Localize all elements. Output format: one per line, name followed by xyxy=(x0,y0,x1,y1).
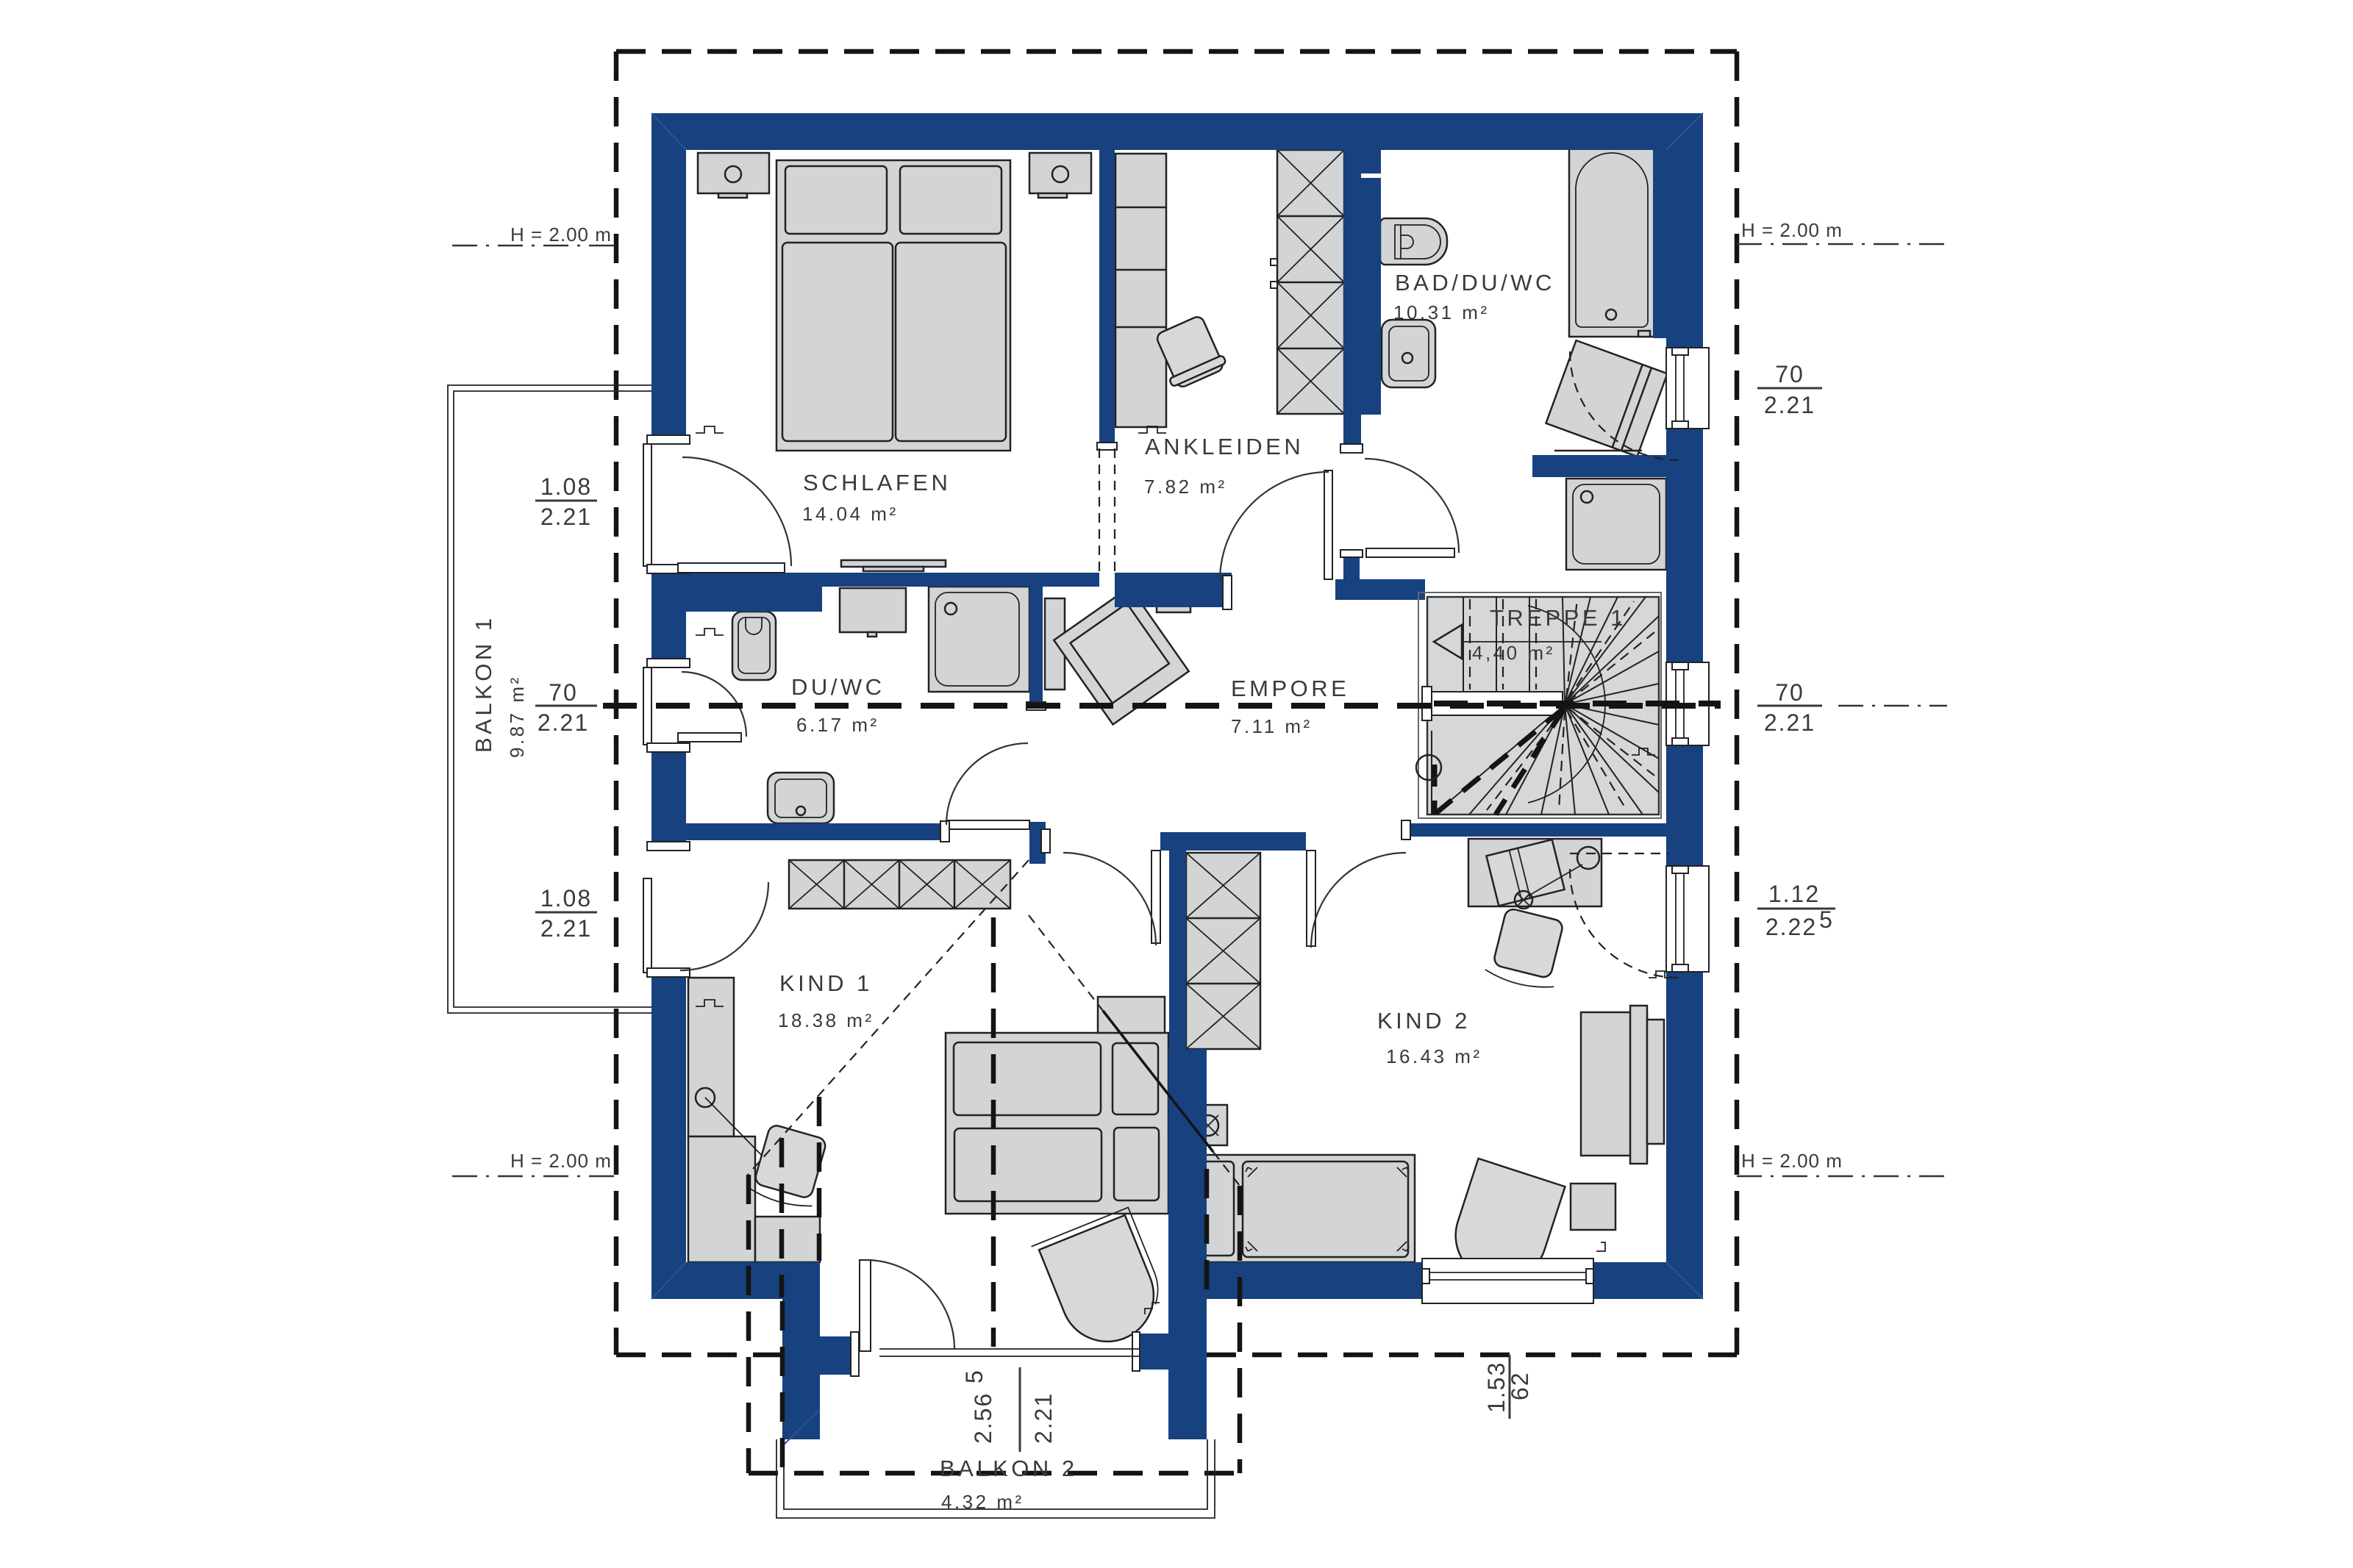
svg-text:2.21: 2.21 xyxy=(540,504,592,530)
svg-text:10.31 m²: 10.31 m² xyxy=(1393,301,1490,323)
svg-text:H = 2.00 m: H = 2.00 m xyxy=(510,223,612,246)
svg-text:9.87 m²: 9.87 m² xyxy=(506,675,528,758)
svg-text:4.32 m²: 4.32 m² xyxy=(941,1491,1024,1513)
svg-text:H = 2.00 m: H = 2.00 m xyxy=(1741,1150,1843,1172)
svg-text:1.12: 1.12 xyxy=(1768,881,1820,907)
svg-text:1.08: 1.08 xyxy=(540,885,592,912)
svg-text:70: 70 xyxy=(1775,679,1804,706)
svg-text:EMPORE: EMPORE xyxy=(1231,676,1349,701)
svg-text:2.21: 2.21 xyxy=(540,915,592,942)
svg-text:TREPPE 1: TREPPE 1 xyxy=(1490,605,1627,631)
svg-text:BAD/DU/WC: BAD/DU/WC xyxy=(1395,270,1555,296)
svg-text:6.17 m²: 6.17 m² xyxy=(796,714,879,736)
svg-text:18.38 m²: 18.38 m² xyxy=(778,1009,874,1031)
svg-text:H = 2.00 m: H = 2.00 m xyxy=(510,1150,612,1172)
svg-text:14.04 m²: 14.04 m² xyxy=(802,503,899,525)
svg-text:2.21: 2.21 xyxy=(538,709,589,736)
svg-text:ANKLEIDEN: ANKLEIDEN xyxy=(1145,434,1304,459)
svg-text:SCHLAFEN: SCHLAFEN xyxy=(803,470,951,495)
svg-text:70: 70 xyxy=(1775,361,1804,387)
svg-text:16.43 m²: 16.43 m² xyxy=(1386,1045,1482,1067)
svg-text:1.08: 1.08 xyxy=(540,473,592,500)
svg-text:2.56: 2.56 xyxy=(970,1392,996,1444)
svg-text:DU/WC: DU/WC xyxy=(791,674,885,700)
svg-text:2.22: 2.22 xyxy=(1765,914,1817,940)
svg-text:70: 70 xyxy=(549,679,578,706)
svg-text:5: 5 xyxy=(961,1369,988,1383)
svg-text:7.82 m²: 7.82 m² xyxy=(1144,476,1227,498)
svg-text:BALKON 1: BALKON 1 xyxy=(471,615,496,753)
svg-text:1.53: 1.53 xyxy=(1483,1361,1510,1413)
svg-text:62: 62 xyxy=(1507,1371,1533,1400)
svg-text:H = 2.00 m: H = 2.00 m xyxy=(1741,219,1843,241)
svg-text:2.21: 2.21 xyxy=(1764,709,1815,736)
svg-text:7.11 m²: 7.11 m² xyxy=(1231,715,1313,737)
svg-text:2.21: 2.21 xyxy=(1030,1392,1057,1444)
svg-text:BALKON 2: BALKON 2 xyxy=(940,1456,1078,1481)
svg-text:KIND 2: KIND 2 xyxy=(1377,1008,1471,1034)
svg-text:KIND 1: KIND 1 xyxy=(779,970,873,996)
svg-text:2.21: 2.21 xyxy=(1764,392,1815,418)
svg-text:5: 5 xyxy=(1819,906,1834,933)
svg-text:4,40 m²: 4,40 m² xyxy=(1472,642,1555,664)
